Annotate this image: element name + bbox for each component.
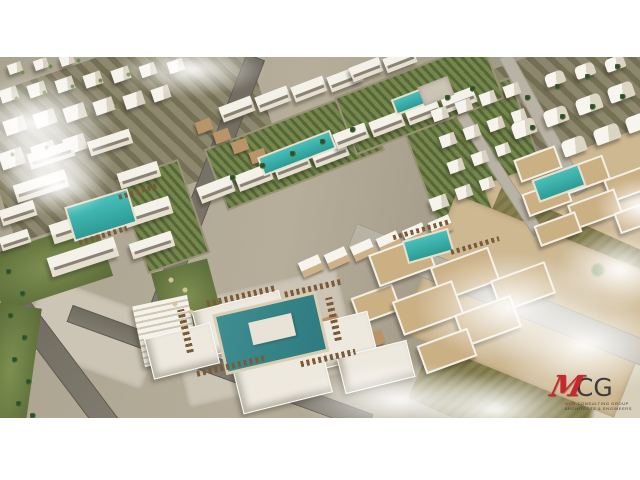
palm-tree bbox=[290, 151, 296, 157]
palm-tree bbox=[530, 125, 536, 131]
cloud bbox=[0, 152, 110, 217]
mcg-logo: MCG MCG CONSULTING GROUP ARCHITECTS & EN… bbox=[551, 372, 632, 411]
letterbox-top bbox=[0, 0, 640, 57]
cloud bbox=[596, 177, 640, 237]
parasol bbox=[168, 277, 174, 283]
palm-tree bbox=[6, 269, 12, 275]
palm-tree bbox=[320, 139, 326, 145]
palm-tree bbox=[12, 357, 18, 363]
logo-mark: MCG bbox=[551, 372, 632, 401]
tree bbox=[48, 64, 53, 69]
aerial-render-image: MCG MCG CONSULTING GROUP ARCHITECTS & EN… bbox=[0, 0, 640, 480]
palm-tree bbox=[16, 401, 22, 407]
palm-tree bbox=[260, 163, 266, 169]
parasol bbox=[188, 309, 194, 315]
parasol bbox=[172, 301, 178, 307]
palm-tree bbox=[8, 313, 14, 319]
palm-tree bbox=[26, 379, 32, 385]
cloud bbox=[555, 227, 640, 312]
palm-tree bbox=[590, 104, 596, 110]
palm-tree bbox=[470, 86, 476, 92]
palm-tree bbox=[350, 127, 356, 133]
palm-tree bbox=[445, 95, 451, 101]
palm-tree bbox=[615, 64, 621, 70]
palm-tree bbox=[525, 95, 531, 101]
palm-tree bbox=[560, 114, 566, 120]
tree bbox=[76, 58, 81, 63]
palm-tree bbox=[230, 175, 236, 181]
logo-caption-line2: ARCHITECTS & ENGINEERS bbox=[565, 407, 632, 411]
cloud bbox=[115, 57, 265, 97]
apartment-block bbox=[290, 75, 327, 102]
townhouse bbox=[324, 246, 351, 270]
palm-tree bbox=[555, 84, 561, 90]
palm-tree bbox=[620, 94, 626, 100]
palm-tree bbox=[22, 335, 28, 341]
apartment-block bbox=[348, 57, 383, 82]
parasol bbox=[182, 287, 188, 293]
villa bbox=[33, 57, 49, 71]
palm-tree bbox=[20, 291, 26, 297]
masterplan-scene bbox=[0, 57, 640, 418]
letterbox-bottom bbox=[0, 418, 640, 480]
palm-tree bbox=[585, 74, 591, 80]
